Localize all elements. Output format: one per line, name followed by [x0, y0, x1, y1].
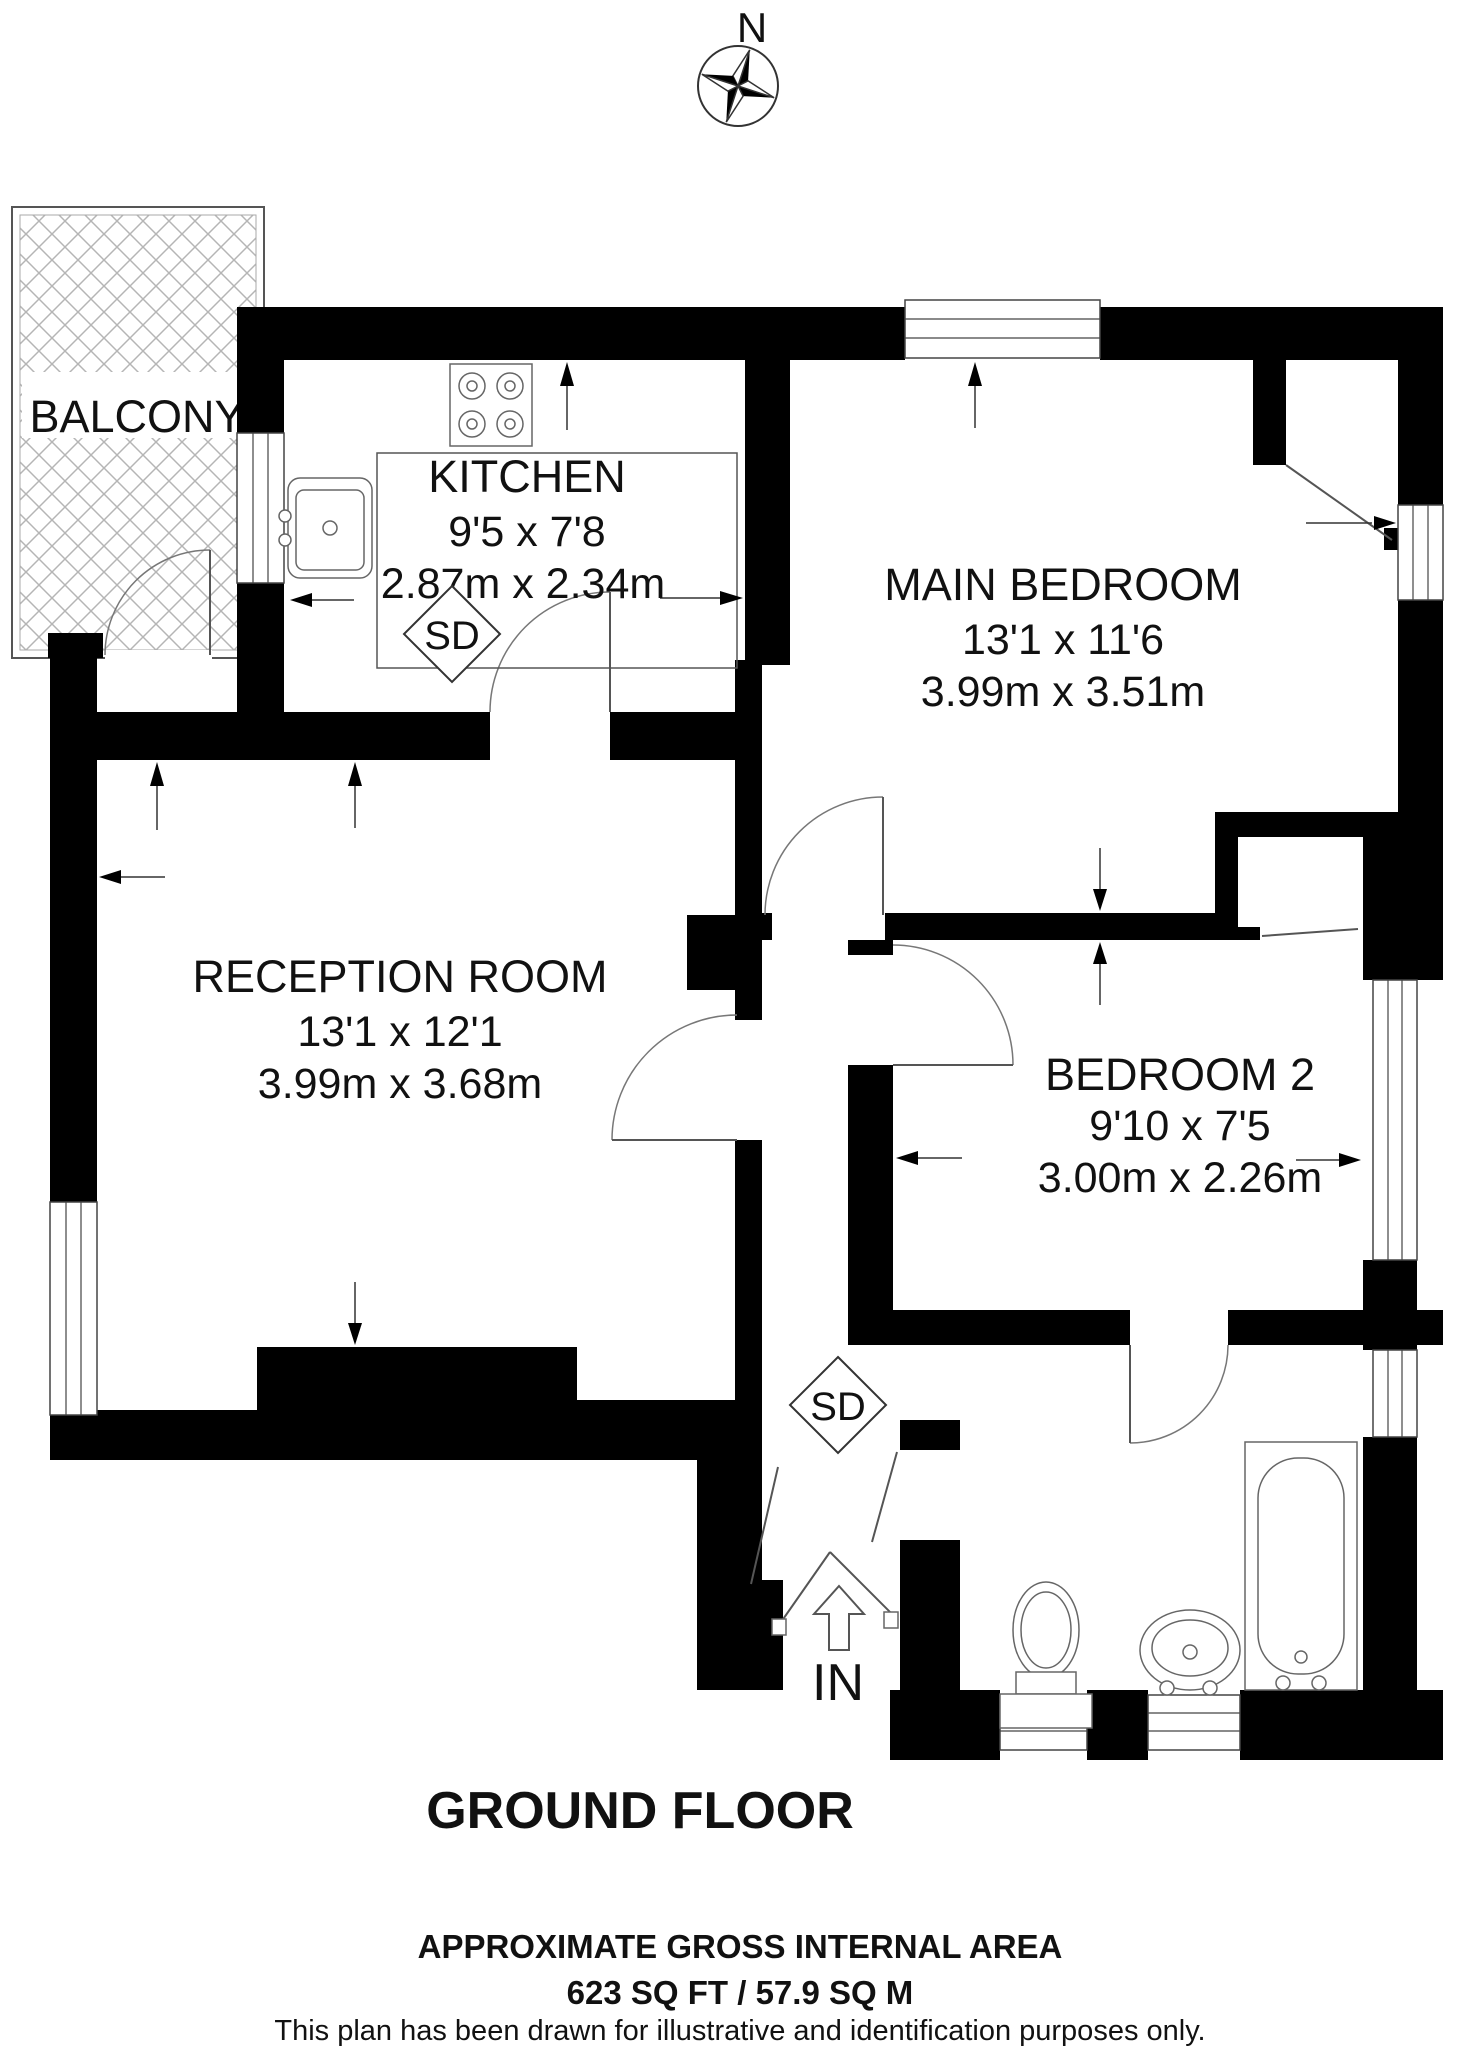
bathtub-icon [1245, 1442, 1357, 1690]
entrance-arrow-icon [814, 1586, 864, 1650]
dim-arrow-up [560, 362, 574, 430]
room-bedroom2: BEDROOM 2 9'10 x 7'5 3.00m x 2.26m [1038, 1049, 1322, 1202]
main-bedroom-top-window [905, 300, 1100, 358]
main-bedroom-dims-metric: 3.99m x 3.51m [921, 668, 1205, 716]
dim-arrow-down [1093, 848, 1107, 911]
floorplan-canvas: N BALCONY [0, 0, 1479, 2048]
kitchen-dims-imperial: 9'5 x 7'8 [448, 508, 605, 556]
bedroom2-closet-door [1262, 929, 1358, 936]
main-bedroom-dims-imperial: 13'1 x 11'6 [962, 616, 1164, 664]
compass-rose: N [690, 4, 786, 134]
bathroom-door [1130, 1345, 1228, 1443]
wc-door [872, 1452, 897, 1542]
main-bedroom-label: MAIN BEDROOM [884, 559, 1242, 610]
bathroom-side-window [1373, 1350, 1417, 1437]
dim-arrow-up [348, 762, 362, 828]
area-value: 623 SQ FT / 57.9 SQ M [567, 1974, 914, 2011]
compass-star [690, 38, 786, 134]
reception-window [50, 1202, 97, 1415]
main-bedroom-door [765, 797, 883, 915]
room-main-bedroom: MAIN BEDROOM 13'1 x 11'6 3.99m x 3.51m [884, 559, 1242, 716]
compass-north-label: N [737, 4, 767, 51]
kitchen-balcony-window [237, 433, 284, 583]
reception-dims-imperial: 13'1 x 12'1 [297, 1008, 502, 1056]
toilet-icon [1000, 1582, 1092, 1728]
kitchen-dims-metric: 2.87m x 2.34m [381, 560, 665, 608]
disclaimer: This plan has been drawn for illustrativ… [274, 2015, 1205, 2047]
dim-arrow-up [968, 362, 982, 428]
smoke-detector-hall: SD [790, 1357, 886, 1453]
dim-arrow-right [1306, 516, 1396, 530]
floor-title: GROUND FLOOR [426, 1782, 854, 1840]
kitchen-sink-icon [279, 478, 372, 578]
hob-icon [450, 364, 532, 446]
dim-arrow-left [99, 870, 165, 884]
entrance: IN [812, 1586, 864, 1712]
reception-label: RECEPTION ROOM [192, 951, 607, 1002]
bedroom2-dims-metric: 3.00m x 2.26m [1038, 1154, 1322, 1202]
floorplan-page: N BALCONY [0, 0, 1479, 2048]
sd-label: SD [810, 1385, 866, 1429]
dim-arrow-left [290, 593, 354, 607]
sd-label: SD [424, 614, 480, 658]
dim-arrow-left [896, 1151, 962, 1165]
reception-door [612, 1015, 737, 1140]
bedroom2-label: BEDROOM 2 [1045, 1049, 1315, 1100]
dim-arrow-up [1093, 942, 1107, 1005]
dim-arrow-up [150, 762, 164, 830]
entrance-label: IN [812, 1654, 864, 1712]
basin-window [1148, 1695, 1240, 1750]
basin-icon [1140, 1610, 1240, 1695]
dim-arrow-right [660, 591, 743, 605]
balcony: BALCONY [12, 207, 264, 662]
bedroom2-window [1373, 980, 1417, 1260]
balcony-label: BALCONY [29, 391, 244, 442]
main-bedroom-side-window [1398, 505, 1443, 600]
room-reception: RECEPTION ROOM 13'1 x 12'1 3.99m x 3.68m [192, 951, 607, 1108]
bedroom2-dims-imperial: 9'10 x 7'5 [1089, 1102, 1270, 1150]
area-heading: APPROXIMATE GROSS INTERNAL AREA [418, 1928, 1063, 1965]
kitchen-label: KITCHEN [428, 451, 626, 502]
kitchen-door [490, 592, 610, 712]
bedroom2-door [893, 945, 1013, 1065]
reception-dims-metric: 3.99m x 3.68m [258, 1060, 542, 1108]
room-kitchen: KITCHEN 9'5 x 7'8 2.87m x 2.34m [381, 451, 665, 608]
dim-arrow-down [348, 1282, 362, 1345]
